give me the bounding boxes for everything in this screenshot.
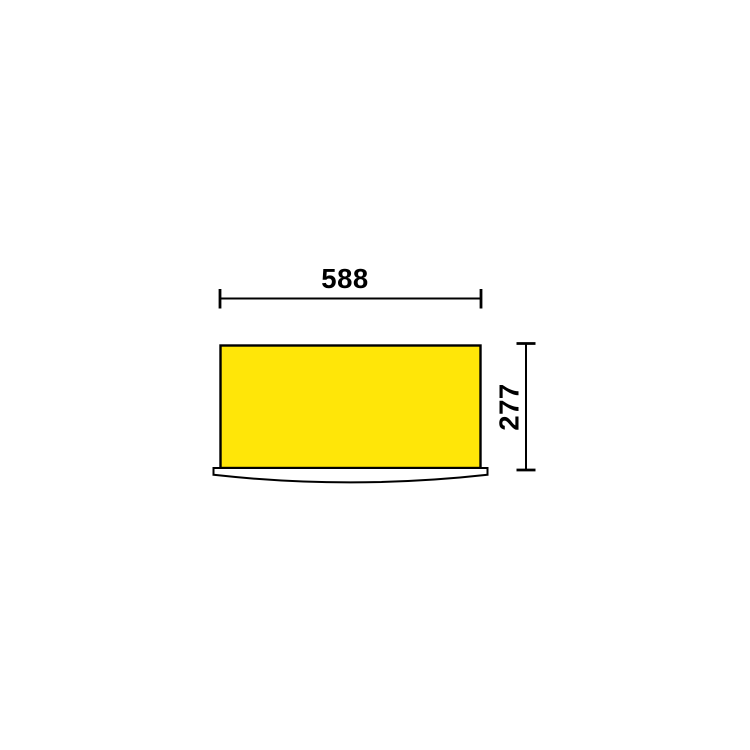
drawing-canvas: 588 277	[0, 0, 750, 750]
cabinet-body	[221, 346, 481, 469]
width-dimension: 588	[220, 263, 481, 309]
dimension-drawing: 588 277	[0, 0, 750, 750]
height-dimension-label: 277	[494, 383, 525, 430]
width-dimension-label: 588	[321, 263, 368, 294]
cabinet	[214, 346, 488, 483]
height-dimension: 277	[494, 344, 536, 471]
cabinet-base	[214, 468, 488, 482]
